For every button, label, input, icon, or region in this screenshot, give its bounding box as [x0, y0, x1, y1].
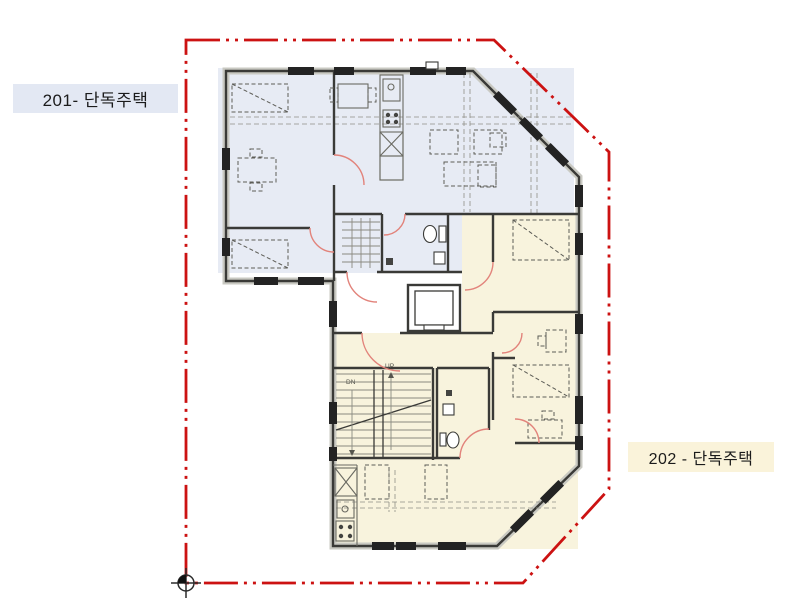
elevator	[408, 285, 460, 331]
unit-201-label: 201- 단독주택	[13, 84, 178, 113]
floor-plan: UP DN	[0, 0, 785, 603]
unit-202-label: 202 - 단독주택	[628, 442, 774, 472]
survey-marker-icon	[171, 568, 201, 598]
stair-down-label: DN	[346, 379, 356, 386]
